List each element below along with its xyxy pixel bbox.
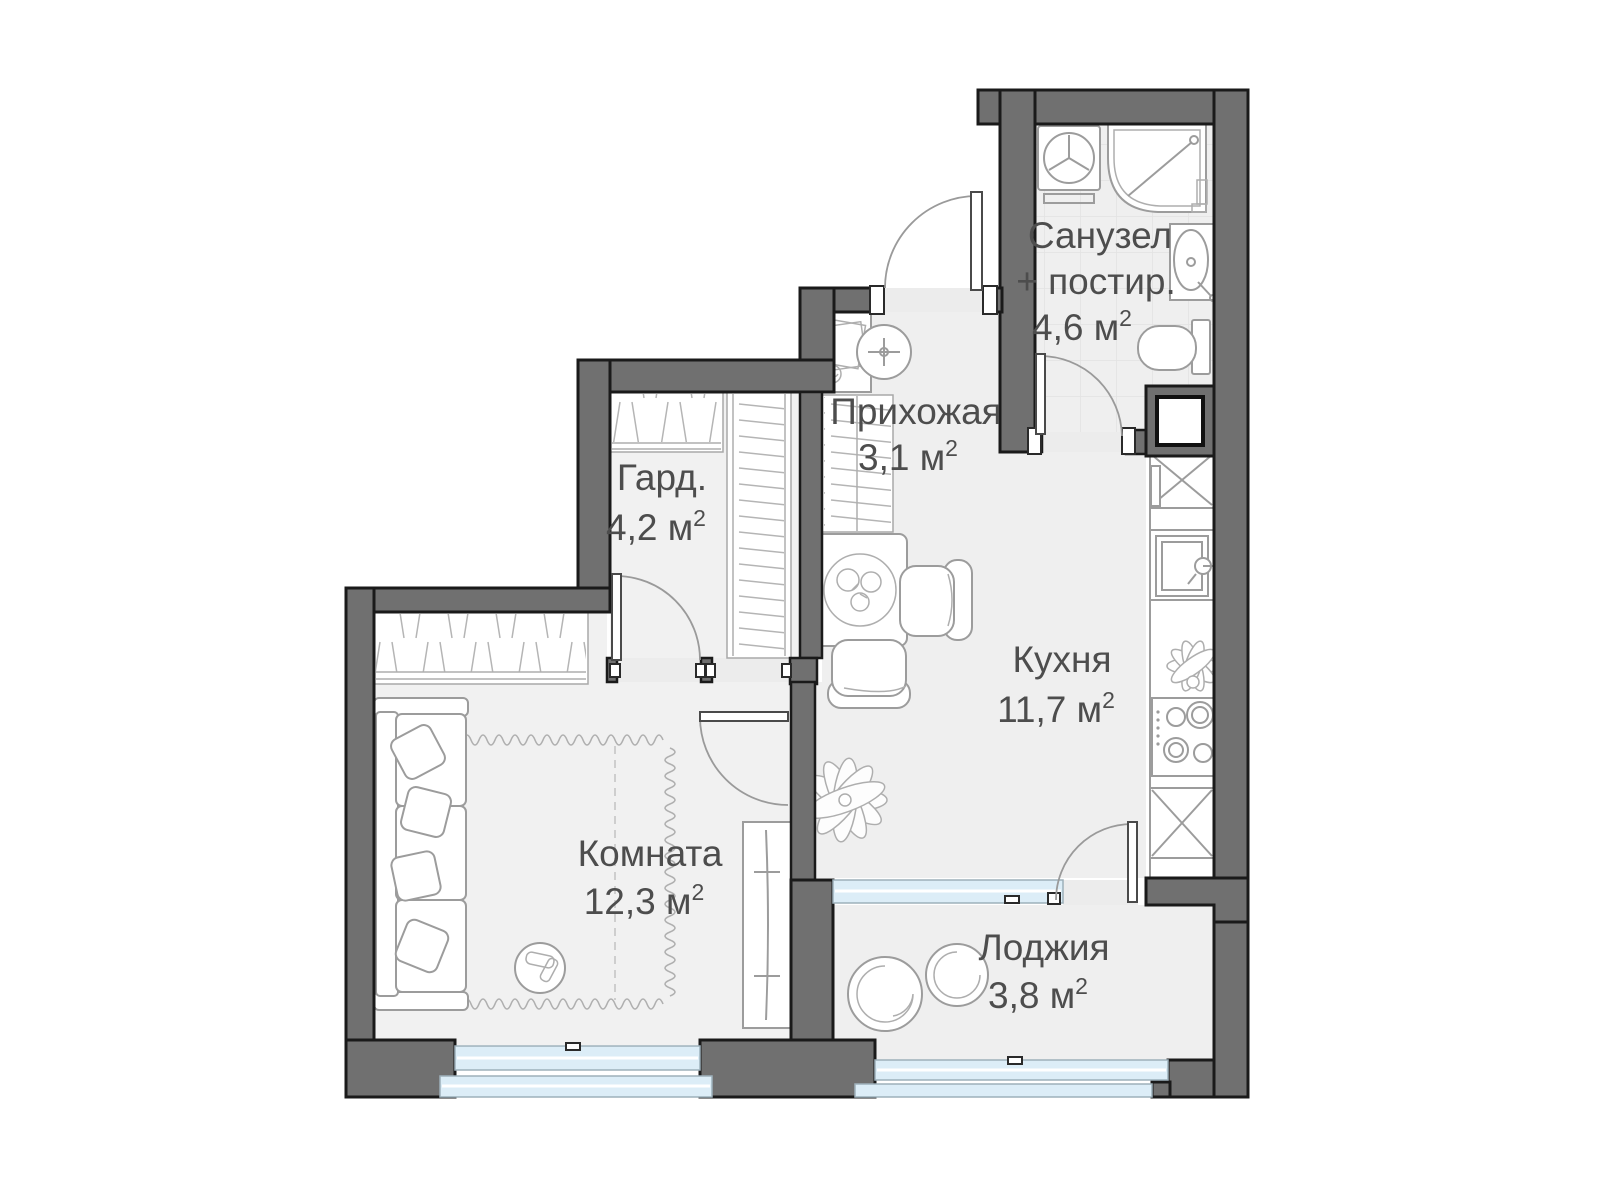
tall-cabinet: [743, 822, 793, 1028]
wardrobe-closet-right: [727, 392, 791, 658]
floor-plan-page: Санузел + постир. 4,6 м2 Прихожая 3,1 м2…: [0, 0, 1600, 1200]
loggia-pier-right-step: [1152, 1082, 1170, 1097]
toilet: [1138, 320, 1210, 374]
bathroom-threshold: [1040, 432, 1128, 452]
wardrobe-top-wall: [578, 360, 834, 392]
room-threshold: [712, 658, 790, 682]
room-top-wall: [346, 588, 610, 612]
hall-wardrobe-partition: [800, 392, 822, 658]
right-exterior-wall: [1214, 90, 1248, 1097]
room-kitchen-partition: [791, 682, 815, 880]
room-area: 12,3 м2: [584, 879, 705, 922]
kitchen-area: 11,7 м2: [997, 687, 1115, 730]
room-closet: [374, 612, 588, 684]
hallway-name: Прихожая: [830, 391, 1001, 432]
balcony-threshold: [1063, 880, 1138, 905]
loggia-pier-right: [1168, 1060, 1214, 1097]
bathroom-name-line1: Санузел: [1028, 215, 1172, 256]
round-basin: [857, 325, 911, 379]
entry-threshold: [880, 288, 985, 312]
wardrobe-closet-top: [610, 392, 723, 452]
left-exterior-wall: [346, 588, 374, 1040]
corner-bathtub: [1108, 124, 1207, 212]
wardrobe-name: Гард.: [617, 457, 707, 498]
kitchen-window: [833, 880, 1063, 903]
room-door-jamb-wall: [790, 658, 817, 684]
chair-bottom: [828, 640, 910, 708]
bottom-pier-middle: [700, 1040, 875, 1097]
sofa: [374, 698, 468, 1010]
room-kitchen-pier: [791, 880, 833, 1045]
room-window: [440, 1043, 712, 1097]
floor-plan-drawing: Санузел + постир. 4,6 м2 Прихожая 3,1 м2…: [0, 0, 1600, 1200]
wardrobe-left-wall: [578, 360, 610, 612]
chair-right: [900, 560, 972, 640]
room-name: Комната: [578, 833, 723, 874]
loggia-area: 3,8 м2: [988, 973, 1088, 1016]
washbasin: [1170, 224, 1216, 301]
loggia-name: Лоджия: [978, 927, 1109, 968]
kitchen-counter: [1150, 452, 1219, 878]
wardrobe-threshold: [617, 658, 701, 682]
loggia-window: [855, 1057, 1168, 1097]
wardrobe-area: 4,2 м2: [606, 505, 706, 548]
loggia-chair-big: [848, 957, 922, 1031]
kitchen-name: Кухня: [1012, 639, 1111, 680]
pouf: [515, 943, 565, 993]
bathroom-name-line2: + постир.: [1016, 261, 1175, 302]
bottom-pier-left: [346, 1040, 455, 1097]
hallway-area: 3,1 м2: [858, 435, 958, 478]
ventilation-shaft: [1157, 397, 1203, 445]
dining-table: [815, 534, 907, 646]
bathroom-area: 4,6 м2: [1032, 305, 1132, 348]
